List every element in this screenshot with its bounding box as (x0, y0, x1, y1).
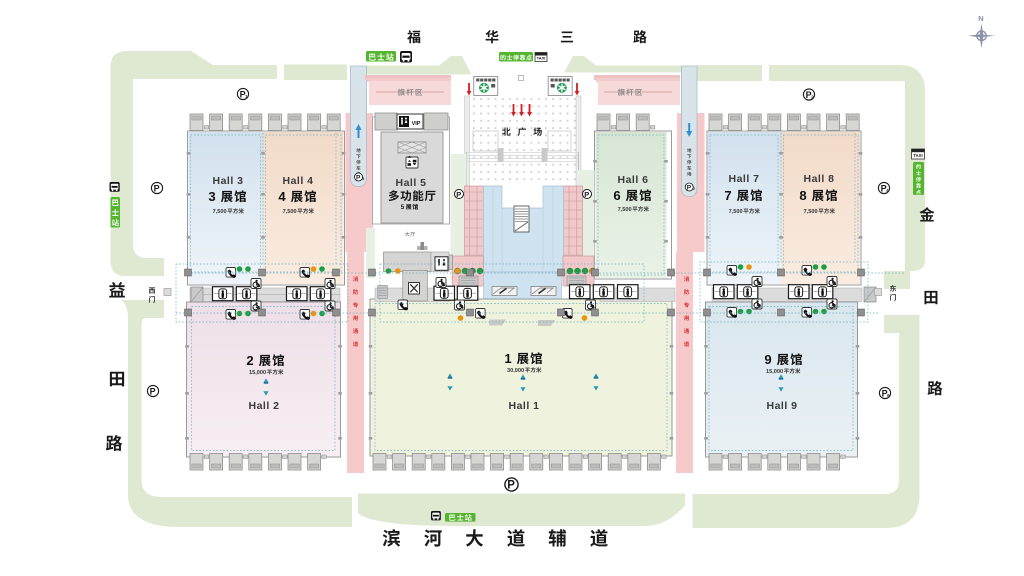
svg-text:4: 4 (278, 189, 286, 204)
svg-text:Hall 3: Hall 3 (212, 175, 243, 187)
svg-text:7,500: 7,500 (729, 209, 743, 215)
svg-text:Hall 2: Hall 2 (248, 400, 279, 412)
svg-text:15,000: 15,000 (766, 369, 783, 375)
svg-text:8: 8 (799, 188, 806, 203)
svg-text:9: 9 (764, 352, 771, 367)
svg-text:Hall 4: Hall 4 (282, 175, 313, 187)
svg-text:Hall 1: Hall 1 (508, 400, 539, 412)
svg-text:7,500: 7,500 (804, 209, 818, 215)
svg-text:30,000: 30,000 (507, 368, 524, 374)
svg-text:Hall 7: Hall 7 (728, 173, 759, 185)
svg-text:1: 1 (504, 351, 511, 366)
svg-text:6: 6 (613, 188, 620, 203)
svg-text:2: 2 (246, 353, 253, 368)
svg-text:TAXI: TAXI (913, 153, 922, 158)
svg-text:3: 3 (362, 177, 364, 181)
svg-text:VIP: VIP (412, 121, 421, 127)
svg-text:Hall 5: Hall 5 (395, 177, 426, 189)
svg-text:7: 7 (724, 188, 731, 203)
svg-text:3: 3 (208, 189, 215, 204)
svg-text:7,500: 7,500 (213, 209, 227, 215)
svg-text:2: 2 (693, 187, 695, 191)
svg-text:5: 5 (401, 204, 405, 211)
svg-text:N: N (978, 14, 983, 23)
svg-text:Hall 9: Hall 9 (766, 400, 797, 412)
svg-text:P: P (507, 480, 515, 492)
svg-text:15,000: 15,000 (249, 370, 266, 376)
svg-text:Hall 6: Hall 6 (617, 174, 648, 186)
svg-text:7,500: 7,500 (283, 209, 297, 215)
svg-text:TAXI: TAXI (537, 56, 546, 61)
svg-text:7,500: 7,500 (618, 207, 632, 213)
svg-text:Hall 8: Hall 8 (803, 173, 834, 185)
